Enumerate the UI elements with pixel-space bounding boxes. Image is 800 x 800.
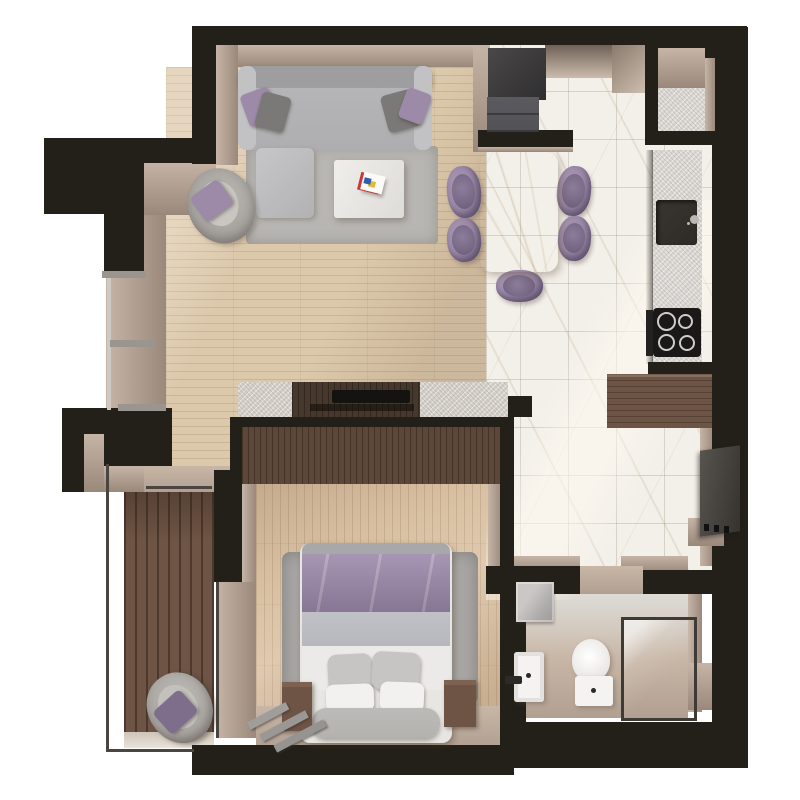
lower-bay-ledge: [84, 434, 104, 492]
burner-bottom-right: [679, 335, 695, 351]
kitchen-wall-stub: [645, 131, 715, 145]
top-wall-inner-face: [216, 45, 478, 67]
bed-headboard: [312, 708, 440, 738]
balcony-railing-bottom: [106, 749, 194, 752]
shower-enclosure: [621, 617, 697, 721]
left-wall-mid: [104, 160, 144, 274]
bedroom-left-glass-wall: [216, 582, 256, 738]
bathroom-mirror: [516, 582, 554, 622]
toilet-flush-button: [591, 688, 596, 693]
window-mullion-top: [102, 271, 146, 278]
bathroom-sink-drain: [526, 673, 531, 678]
wardrobe-front: [242, 427, 500, 484]
toilet-bowl: [572, 639, 610, 681]
right-wall: [712, 45, 748, 760]
dining-chair-bottom: [496, 270, 543, 302]
kitchen-faucet: [690, 215, 699, 224]
bathroom-bottom-wall: [514, 722, 748, 768]
tv-shelf-shadow: [310, 404, 414, 411]
bed-blanket-gray: [302, 612, 450, 648]
window-mullion-bottom: [118, 404, 166, 411]
burner-bottom-left: [658, 334, 675, 351]
lower-bay-wall-vertical: [62, 408, 84, 492]
bay-wall-vertical: [44, 138, 106, 214]
bedroom-left-glass-frame: [216, 582, 219, 738]
dining-table: [480, 152, 558, 272]
bedroom-bottom-wall: [192, 745, 514, 775]
kitchen-counter-end-wall: [648, 362, 712, 374]
wardrobe-frame-top: [230, 417, 512, 427]
stone-pillar-left: [238, 382, 292, 418]
balcony-door-track: [146, 486, 212, 489]
entry-doormat: [488, 48, 546, 100]
kitchen-niche-wall: [645, 45, 658, 145]
television: [332, 390, 410, 403]
ottoman: [256, 148, 314, 218]
floor-plan: [0, 0, 800, 800]
window-mullion-middle: [110, 340, 156, 347]
entry-closet-divider: [487, 113, 539, 115]
nightstand-right: [444, 680, 476, 727]
balcony-railing-vertical: [106, 464, 109, 752]
burner-top-left: [657, 312, 676, 331]
stone-pillar-right: [420, 382, 508, 418]
entry-right-wall-face: [612, 45, 648, 93]
cooktop-knob-strip: [646, 310, 653, 356]
wardrobe-frame-left: [230, 417, 242, 485]
bedroom-left-wall-face: [242, 482, 256, 582]
bathroom-top-wall-right: [643, 570, 712, 594]
left-wall-inner-face: [216, 45, 238, 165]
kitchen-upper-cabinet: [658, 48, 705, 88]
entry-wall-stub: [478, 130, 573, 148]
bathroom-door-threshold: [580, 566, 643, 594]
burner-top-right: [678, 314, 693, 329]
kitchen-niche-side-face: [705, 58, 715, 131]
living-room-floor-extension: [166, 418, 238, 468]
balcony-door-column: [214, 470, 242, 582]
bed-duvet-purple: [302, 554, 450, 616]
left-wall-below-window: [104, 408, 172, 466]
hallway-dresser: [607, 374, 712, 428]
bathroom-faucet: [505, 676, 522, 684]
hallway-tv-feet: [704, 524, 709, 531]
cooktop: [653, 308, 701, 357]
kitchen-counter-niche: [658, 88, 705, 131]
